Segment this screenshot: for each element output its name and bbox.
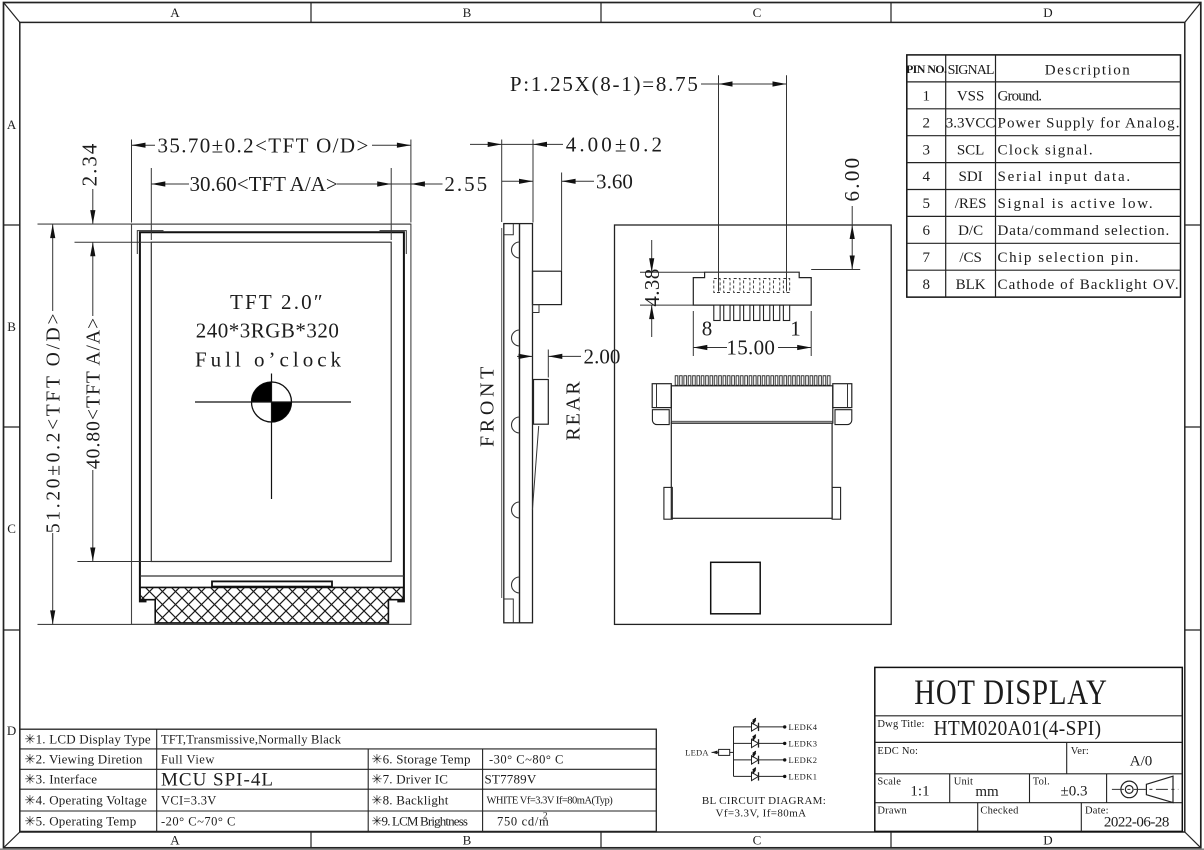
svg-text:15.00: 15.00 (726, 336, 775, 360)
svg-text:B: B (7, 319, 16, 334)
svg-text:40.80<TFT A/A>: 40.80<TFT A/A> (83, 317, 104, 469)
svg-text:5: 5 (922, 196, 930, 212)
svg-text:✳1. LCD Display Type: ✳1. LCD Display Type (25, 731, 151, 746)
svg-text:SCL: SCL (957, 142, 985, 158)
svg-text:REAR: REAR (562, 379, 584, 440)
svg-text:Cathode of Backlight OV.: Cathode of Backlight OV. (998, 277, 1180, 293)
svg-text:4.00±0.2: 4.00±0.2 (566, 133, 665, 157)
svg-text:A: A (170, 5, 180, 20)
svg-text:WHITE Vf=3.3V If=80mA(Typ): WHITE Vf=3.3V If=80mA(Typ) (487, 796, 614, 807)
svg-text:Full o’clock: Full o’clock (195, 348, 345, 372)
svg-text:✳4. Operating Voltage: ✳4. Operating Voltage (25, 792, 148, 807)
svg-text:C: C (7, 521, 16, 536)
svg-text:MCU SPI-4L: MCU SPI-4L (161, 770, 274, 791)
svg-text:VSS: VSS (957, 89, 985, 105)
svg-text:/CS: /CS (959, 250, 982, 266)
svg-text:Clock signal.: Clock signal. (998, 142, 1094, 158)
svg-text:D: D (1043, 5, 1052, 20)
svg-text:LEDK4: LEDK4 (789, 722, 818, 732)
svg-text:BLK: BLK (956, 277, 986, 293)
svg-text:LEDK3: LEDK3 (789, 738, 818, 748)
svg-text:Checked: Checked (980, 805, 1019, 816)
svg-text:✳5. Operating Temp: ✳5. Operating Temp (25, 813, 137, 828)
svg-text:SDI: SDI (959, 169, 983, 185)
svg-text:ST7789V: ST7789V (485, 772, 537, 787)
svg-text:2: 2 (543, 811, 548, 821)
svg-text:C: C (753, 5, 762, 20)
svg-text:P:1.25X(8-1)=8.75: P:1.25X(8-1)=8.75 (510, 72, 700, 96)
svg-text:51.20±0.2<TFT O/D>: 51.20±0.2<TFT O/D> (43, 311, 64, 533)
svg-text:8: 8 (922, 277, 930, 293)
svg-text:B: B (463, 833, 472, 848)
svg-text:✳6. Storage Temp: ✳6. Storage Temp (372, 751, 471, 766)
svg-text:✳3. Interface: ✳3. Interface (25, 772, 98, 787)
svg-text:LEDK2: LEDK2 (789, 755, 818, 765)
svg-text:Data/command selection.: Data/command selection. (998, 223, 1171, 239)
svg-text:A: A (7, 117, 17, 132)
svg-text:/RES: /RES (955, 196, 987, 212)
svg-text:A: A (170, 833, 180, 848)
svg-text:SIGNAL: SIGNAL (948, 63, 994, 78)
svg-text:HOT DISPLAY: HOT DISPLAY (914, 673, 1108, 713)
svg-text:FRONT: FRONT (476, 363, 498, 447)
svg-text:6.00: 6.00 (840, 156, 864, 202)
svg-text:Serial input data.: Serial input data. (998, 169, 1132, 185)
svg-text:240*3RGB*320: 240*3RGB*320 (196, 319, 340, 343)
svg-text:Signal is active low.: Signal is active low. (998, 196, 1155, 212)
svg-text:-20° C~70° C: -20° C~70° C (161, 814, 236, 828)
svg-text:Dwg Title:: Dwg Title: (877, 719, 924, 730)
svg-text:Ver:: Ver: (1071, 746, 1089, 757)
svg-text:LEDA: LEDA (685, 747, 709, 757)
svg-text:2.55: 2.55 (444, 172, 489, 196)
svg-text:Ground.: Ground. (998, 89, 1042, 105)
svg-text:7: 7 (922, 250, 930, 266)
svg-text:A/0: A/0 (1130, 754, 1153, 770)
svg-text:1: 1 (922, 89, 930, 105)
svg-text:3.60: 3.60 (596, 169, 633, 193)
svg-text:4.38: 4.38 (640, 268, 664, 306)
svg-text:mm: mm (975, 784, 999, 800)
svg-text:BL CIRCUIT DIAGRAM:: BL CIRCUIT DIAGRAM: (702, 795, 826, 807)
svg-text:750 cd/m: 750 cd/m (497, 814, 549, 828)
svg-text:HTM020A01(4-SPI): HTM020A01(4-SPI) (934, 717, 1102, 740)
svg-text:TFT 2.0″: TFT 2.0″ (230, 290, 325, 314)
svg-text:Vf=3.3V, If=80mA: Vf=3.3V, If=80mA (715, 808, 806, 820)
svg-text:✳7. Driver IC: ✳7. Driver IC (372, 772, 449, 787)
svg-text:4: 4 (922, 169, 930, 185)
svg-text:LEDK1: LEDK1 (789, 771, 818, 781)
svg-text:2: 2 (922, 115, 930, 131)
svg-text:D: D (7, 723, 16, 738)
svg-text:✳9. LCM Brightness: ✳9. LCM Brightness (372, 813, 468, 828)
svg-text:Unit: Unit (954, 776, 973, 787)
svg-text:Scale: Scale (877, 776, 901, 787)
svg-text:Description: Description (1045, 62, 1131, 78)
svg-text:Full View: Full View (161, 752, 215, 766)
svg-text:Drawn: Drawn (877, 805, 907, 816)
svg-text:30.60<TFT A/A>: 30.60<TFT A/A> (190, 172, 338, 196)
svg-text:✳8. Backlight: ✳8. Backlight (372, 792, 449, 807)
svg-text:Tol.: Tol. (1033, 776, 1050, 787)
svg-text:✳2. Viewing Diretion: ✳2. Viewing Diretion (25, 751, 144, 766)
svg-text:3: 3 (922, 142, 930, 158)
svg-text:Chip selection pin.: Chip selection pin. (998, 250, 1141, 266)
svg-text:EDC No:: EDC No: (877, 746, 918, 757)
svg-text:C: C (753, 833, 762, 848)
svg-text:B: B (463, 5, 472, 20)
svg-text:D/C: D/C (958, 223, 983, 239)
svg-text:6: 6 (922, 223, 930, 239)
svg-text:2022-06-28: 2022-06-28 (1104, 814, 1169, 830)
svg-text:±0.3: ±0.3 (1061, 784, 1088, 800)
svg-text:PIN NO.: PIN NO. (906, 62, 947, 76)
svg-text:35.70±0.2<TFT O/D>: 35.70±0.2<TFT O/D> (157, 133, 369, 157)
svg-text:TFT,Transmissive,Normally Blac: TFT,Transmissive,Normally Black (161, 732, 342, 746)
svg-text:3.3VCC: 3.3VCC (946, 115, 996, 131)
svg-text:-30° C~80° C: -30° C~80° C (489, 752, 564, 766)
svg-text:1:1: 1:1 (910, 784, 929, 800)
svg-text:8: 8 (702, 317, 713, 341)
svg-text:2.34: 2.34 (78, 142, 102, 187)
svg-text:Power Supply for Analog.: Power Supply for Analog. (998, 115, 1181, 131)
svg-text:D: D (1043, 833, 1052, 848)
svg-text:VCI=3.3V: VCI=3.3V (161, 793, 217, 807)
svg-text:1: 1 (790, 317, 801, 341)
